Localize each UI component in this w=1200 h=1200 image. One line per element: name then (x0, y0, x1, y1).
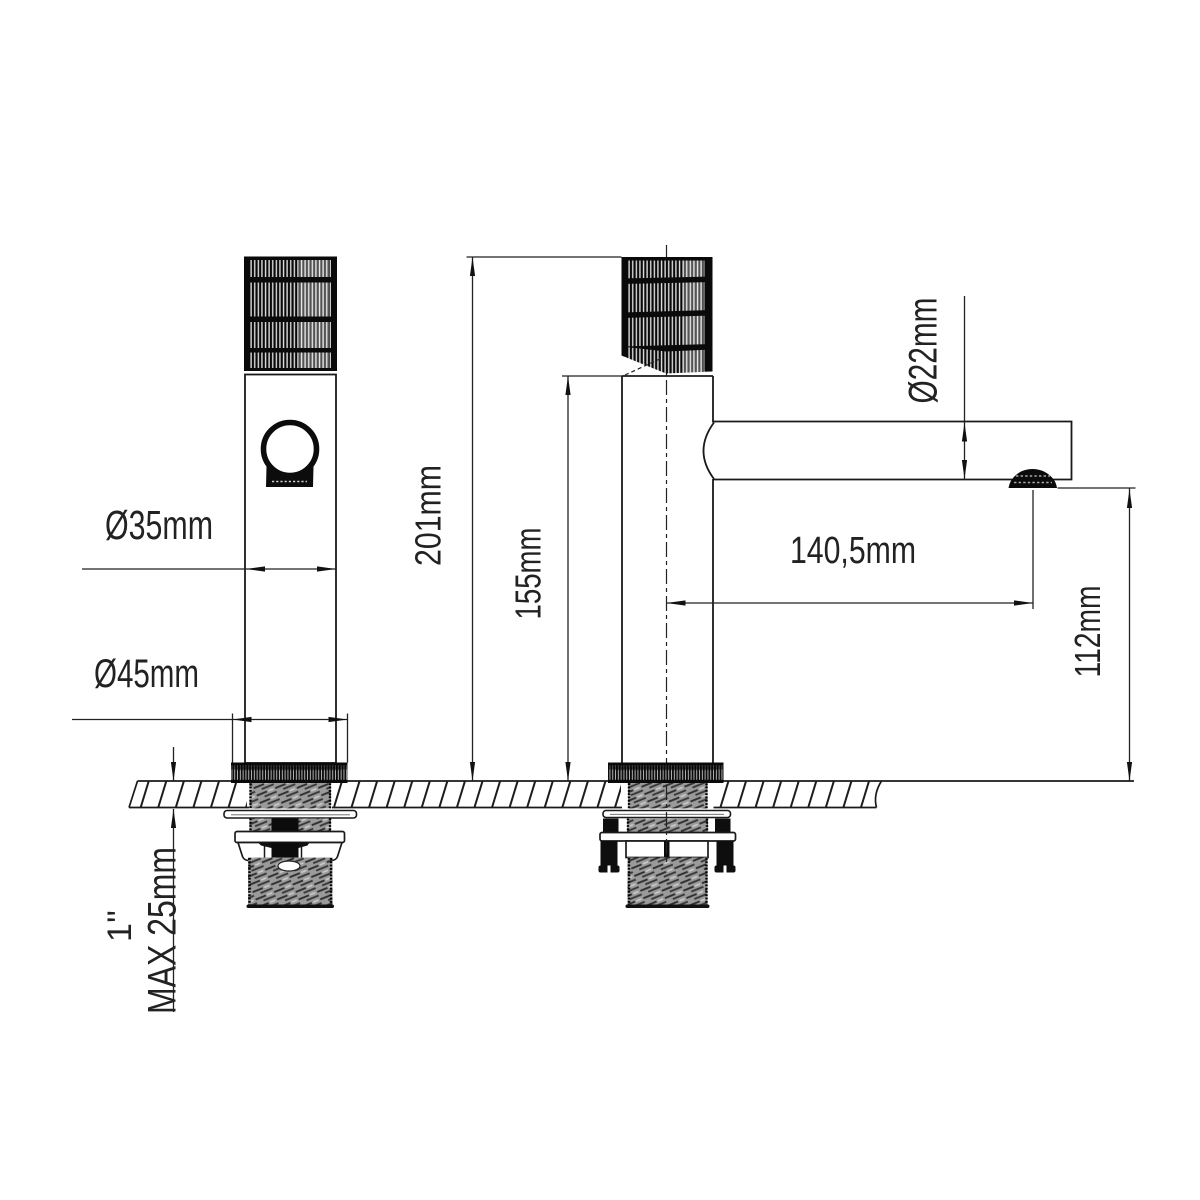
svg-text:155mm: 155mm (508, 528, 549, 620)
svg-text:Ø22mm: Ø22mm (902, 298, 946, 404)
svg-text:MAX 25mm: MAX 25mm (141, 847, 185, 1014)
svg-text:201mm: 201mm (408, 465, 449, 566)
svg-text:112mm: 112mm (1067, 586, 1108, 678)
svg-text:Ø45mm: Ø45mm (94, 652, 199, 696)
svg-text:Ø35mm: Ø35mm (105, 502, 213, 548)
svg-text:1'': 1'' (101, 910, 139, 942)
svg-text:140,5mm: 140,5mm (790, 530, 916, 572)
